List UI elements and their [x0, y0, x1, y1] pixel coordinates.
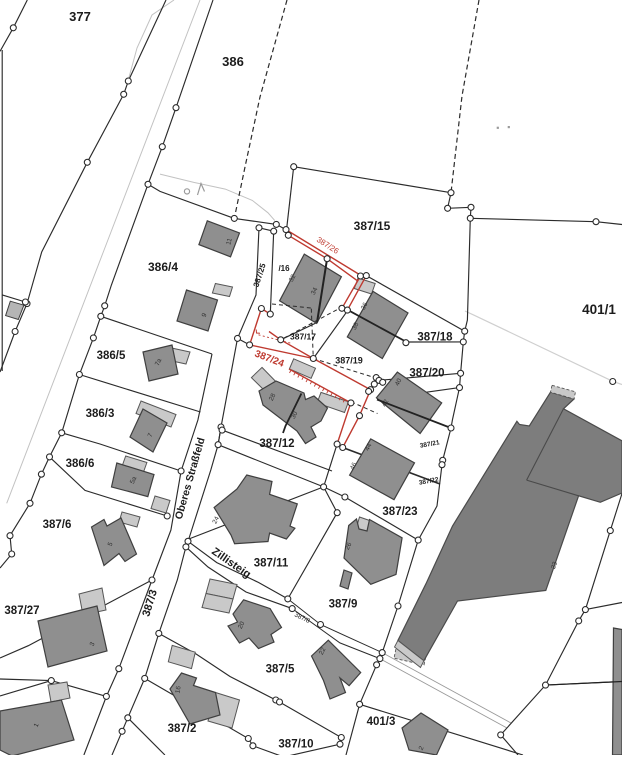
svg-text:386/4: 386/4 — [148, 260, 178, 274]
svg-text:387/12: 387/12 — [259, 438, 294, 450]
svg-text:387/23: 387/23 — [382, 506, 417, 518]
svg-text:387/15: 387/15 — [354, 219, 391, 233]
svg-text:387/20: 387/20 — [409, 368, 444, 380]
svg-text:387/27: 387/27 — [4, 605, 39, 617]
svg-text:387/10: 387/10 — [278, 739, 313, 751]
svg-text:387/2: 387/2 — [168, 723, 197, 735]
svg-text:387/9: 387/9 — [329, 599, 358, 611]
svg-text:387/5: 387/5 — [266, 664, 295, 676]
svg-text:401/3: 401/3 — [367, 716, 396, 728]
svg-text:387/19: 387/19 — [335, 356, 363, 366]
svg-text:386/5: 386/5 — [97, 350, 126, 362]
svg-text:386/3: 386/3 — [86, 408, 115, 420]
svg-text:387/18: 387/18 — [417, 332, 453, 344]
svg-text:387/11: 387/11 — [254, 558, 289, 570]
svg-text:386/6: 386/6 — [66, 458, 95, 470]
svg-text:387/6: 387/6 — [43, 519, 72, 531]
svg-text:377: 377 — [69, 9, 91, 24]
svg-text:386: 386 — [222, 54, 244, 69]
svg-text:/16: /16 — [278, 264, 290, 273]
svg-text:387/17: 387/17 — [290, 332, 316, 342]
svg-text:401/1: 401/1 — [582, 302, 616, 317]
